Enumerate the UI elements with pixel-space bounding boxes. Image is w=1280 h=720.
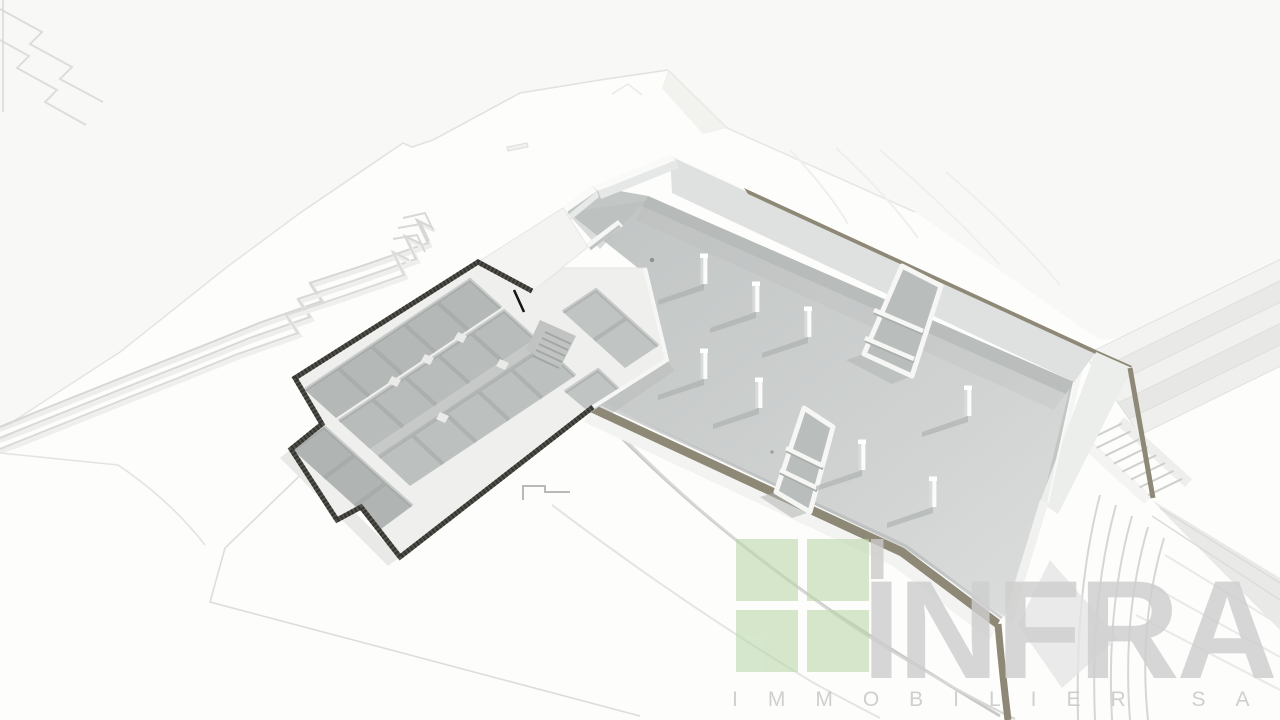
render-canvas: INFRA IMMOBILIER SA bbox=[0, 0, 1280, 720]
green-window-grid-icon bbox=[736, 539, 869, 672]
architectural-render-viewport: INFRA IMMOBILIER SA bbox=[0, 0, 1280, 720]
brand-wordmark: INFRA bbox=[862, 551, 1275, 708]
kerb-mark bbox=[523, 486, 570, 500]
cellar-room-cluster bbox=[280, 208, 667, 566]
small-ledge bbox=[507, 143, 528, 151]
brand-subtitle: IMMOBILIER SA bbox=[732, 688, 1280, 711]
watermark-logo: INFRA IMMOBILIER SA bbox=[732, 539, 1280, 711]
